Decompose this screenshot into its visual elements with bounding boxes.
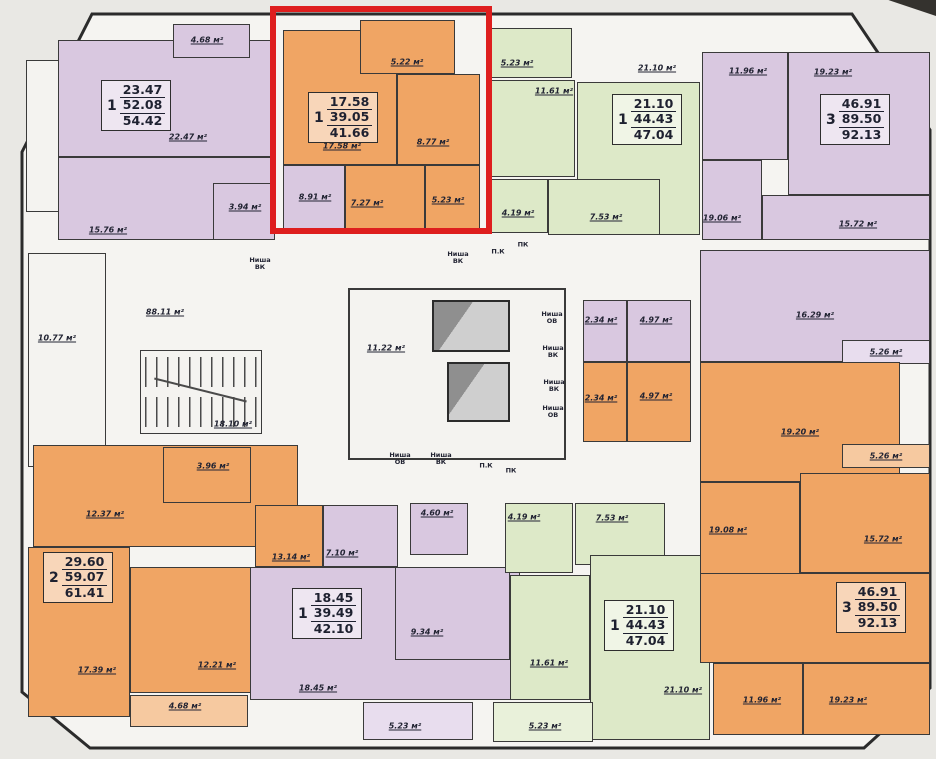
apartment-summary: 346.9189.5092.13 xyxy=(836,582,906,633)
room-region xyxy=(395,567,510,660)
elevator-shaft xyxy=(447,362,510,422)
apartment-summary: 118.4539.4942.10 xyxy=(292,588,362,639)
room-area-label: 12.21 м² xyxy=(198,661,236,670)
room-area-label: 2.34 м² xyxy=(585,394,618,403)
niche-label: Ниша ВК xyxy=(543,379,564,393)
room-region xyxy=(323,505,398,567)
area-value: 89.50 xyxy=(855,600,901,615)
room-area-label: 4.68 м² xyxy=(191,36,224,45)
room-count: 1 xyxy=(618,112,628,128)
room-area-label: 18.45 м² xyxy=(299,684,337,693)
niche-label: Ниша ВК xyxy=(249,257,270,271)
room-area-label: 11.61 м² xyxy=(530,659,568,668)
room-area-label: 3.94 м² xyxy=(229,203,262,212)
niche-label: П.К xyxy=(491,248,504,255)
room-area-label: 11.61 м² xyxy=(535,87,573,96)
niche-label: Ниша ОВ xyxy=(541,311,562,325)
room-count: 2 xyxy=(49,570,59,586)
area-value: 52.08 xyxy=(120,98,166,113)
room-area-label: 22.47 м² xyxy=(169,133,207,142)
apartment-summary: 346.9189.5092.13 xyxy=(820,94,890,145)
apartment-areas: 46.9189.5092.13 xyxy=(855,585,901,630)
room-area-label: 10.77 м² xyxy=(38,334,76,343)
room-region xyxy=(130,567,252,693)
elevator-shaft xyxy=(432,300,510,352)
area-value: 44.43 xyxy=(623,618,669,633)
room-area-label: 4.97 м² xyxy=(640,392,673,401)
room-area-label: 7.53 м² xyxy=(596,514,629,523)
room-area-label: 5.23 м² xyxy=(501,59,534,68)
niche-label: П.К xyxy=(479,462,492,469)
niche-label: Ниша ВК xyxy=(430,452,451,466)
room-area-label: 19.20 м² xyxy=(781,428,819,437)
area-value: 47.04 xyxy=(631,128,677,142)
room-region xyxy=(510,575,590,700)
niche-label: Ниша ОВ xyxy=(389,452,410,466)
room-area-label: 11.96 м² xyxy=(729,67,767,76)
room-area-label: 21.10 м² xyxy=(664,686,702,695)
room-area-label: 88.11 м² xyxy=(146,308,184,317)
room-count: 1 xyxy=(298,606,308,622)
room-area-label: 4.68 м² xyxy=(169,702,202,711)
room-region xyxy=(702,160,762,240)
apartment-areas: 23.4752.0854.42 xyxy=(120,83,166,128)
room-region xyxy=(487,179,548,233)
room-area-label: 4.60 м² xyxy=(421,509,454,518)
room-count: 1 xyxy=(610,618,620,634)
stair-flight xyxy=(145,357,257,387)
area-value: 44.43 xyxy=(631,112,677,127)
room-area-label: 4.19 м² xyxy=(508,513,541,522)
room-area-label: 5.26 м² xyxy=(870,348,903,357)
room-region xyxy=(627,362,691,442)
area-value: 89.50 xyxy=(839,112,885,127)
highlight-box xyxy=(270,6,492,234)
room-count: 1 xyxy=(107,98,117,114)
area-value: 92.13 xyxy=(839,128,885,142)
area-value: 54.42 xyxy=(120,114,166,128)
room-region xyxy=(762,195,930,240)
room-region xyxy=(800,473,930,573)
apartment-summary: 121.1044.4347.04 xyxy=(604,600,674,651)
apartment-areas: 46.9189.5092.13 xyxy=(839,97,885,142)
room-region xyxy=(213,183,275,240)
room-region xyxy=(163,447,251,503)
room-area-label: 4.19 м² xyxy=(502,209,535,218)
room-area-label: 4.97 м² xyxy=(640,316,673,325)
room-area-label: 15.72 м² xyxy=(864,535,902,544)
room-region xyxy=(28,253,106,467)
room-area-label: 18.10 м² xyxy=(214,420,252,429)
area-value: 39.49 xyxy=(311,606,357,621)
room-area-label: 12.37 м² xyxy=(86,510,124,519)
room-area-label: 7.10 м² xyxy=(326,549,359,558)
room-region xyxy=(627,300,691,362)
room-area-label: 15.76 м² xyxy=(89,226,127,235)
niche-label: ПК xyxy=(518,241,529,248)
niche-label: Ниша ВК xyxy=(542,345,563,359)
area-value: 47.04 xyxy=(623,634,669,648)
room-area-label: 21.10 м² xyxy=(638,64,676,73)
room-area-label: 19.23 м² xyxy=(829,696,867,705)
room-area-label: 19.08 м² xyxy=(709,526,747,535)
niche-label: Ниша ВК xyxy=(447,251,468,265)
apartment-areas: 21.1044.4347.04 xyxy=(631,97,677,142)
room-area-label: 17.39 м² xyxy=(78,666,116,675)
area-value: 46.91 xyxy=(839,97,885,112)
apartment-summary: 123.4752.0854.42 xyxy=(101,80,171,131)
area-value: 92.13 xyxy=(855,616,901,630)
area-value: 61.41 xyxy=(62,586,108,600)
room-area-label: 5.23 м² xyxy=(389,722,422,731)
area-value: 59.07 xyxy=(62,570,108,585)
room-area-label: 15.72 м² xyxy=(839,220,877,229)
apartment-areas: 29.6059.0761.41 xyxy=(62,555,108,600)
room-region xyxy=(548,179,660,235)
area-value: 29.60 xyxy=(62,555,108,570)
apartment-areas: 18.4539.4942.10 xyxy=(311,591,357,636)
room-region xyxy=(130,695,248,727)
room-area-label: 2.34 м² xyxy=(585,316,618,325)
room-region xyxy=(26,60,60,212)
room-area-label: 9.34 м² xyxy=(411,628,444,637)
room-area-label: 5.23 м² xyxy=(529,722,562,731)
apartment-summary: 121.1044.4347.04 xyxy=(612,94,682,145)
room-area-label: 11.22 м² xyxy=(367,344,405,353)
area-value: 23.47 xyxy=(120,83,166,98)
room-count: 3 xyxy=(826,112,836,128)
room-count: 3 xyxy=(842,600,852,616)
area-value: 21.10 xyxy=(631,97,677,112)
area-value: 21.10 xyxy=(623,603,669,618)
room-area-label: 19.23 м² xyxy=(814,68,852,77)
room-region xyxy=(583,300,627,362)
niche-label: Ниша ОВ xyxy=(542,405,563,419)
room-area-label: 3.96 м² xyxy=(197,462,230,471)
area-value: 42.10 xyxy=(311,622,357,636)
apartment-areas: 21.1044.4347.04 xyxy=(623,603,669,648)
room-area-label: 19.06 м² xyxy=(703,214,741,223)
room-area-label: 16.29 м² xyxy=(796,311,834,320)
niche-label: ПК xyxy=(506,467,517,474)
area-value: 46.91 xyxy=(855,585,901,600)
apartment-summary: 229.6059.0761.41 xyxy=(43,552,113,603)
room-region xyxy=(490,28,572,78)
room-area-label: 7.53 м² xyxy=(590,213,623,222)
scanned-floor-plan-sheet: 4.68 м²22.47 м²15.76 м²3.94 м²10.77 м²5.… xyxy=(0,0,936,759)
area-value: 18.45 xyxy=(311,591,357,606)
room-area-label: 5.26 м² xyxy=(870,452,903,461)
room-area-label: 11.96 м² xyxy=(743,696,781,705)
room-area-label: 13.14 м² xyxy=(272,553,310,562)
